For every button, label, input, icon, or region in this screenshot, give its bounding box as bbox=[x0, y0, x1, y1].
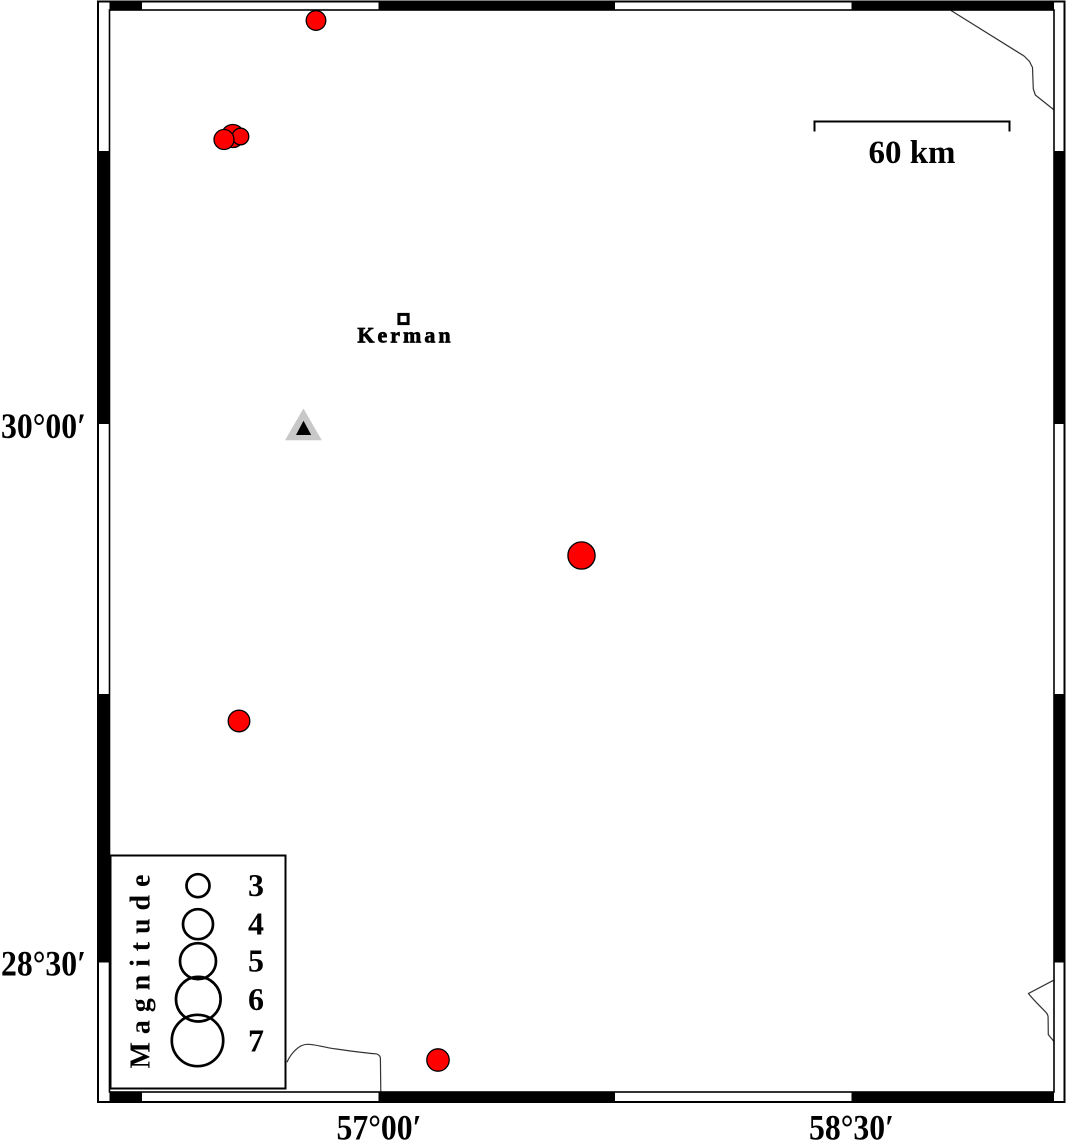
svg-text:58°30′: 58°30′ bbox=[809, 1108, 894, 1141]
svg-text:6: 6 bbox=[248, 981, 264, 1017]
svg-text:Kerman: Kerman bbox=[357, 322, 453, 347]
svg-text:30°00′: 30°00′ bbox=[1, 406, 86, 446]
svg-text:Magnitude: Magnitude bbox=[126, 867, 157, 1069]
svg-text:60 km: 60 km bbox=[869, 135, 956, 171]
svg-text:4: 4 bbox=[248, 906, 264, 942]
svg-text:7: 7 bbox=[248, 1023, 264, 1059]
svg-text:3: 3 bbox=[248, 867, 264, 903]
svg-text:57°00′: 57°00′ bbox=[337, 1108, 422, 1141]
svg-text:5: 5 bbox=[248, 943, 264, 979]
svg-text:28°30′: 28°30′ bbox=[1, 944, 86, 984]
